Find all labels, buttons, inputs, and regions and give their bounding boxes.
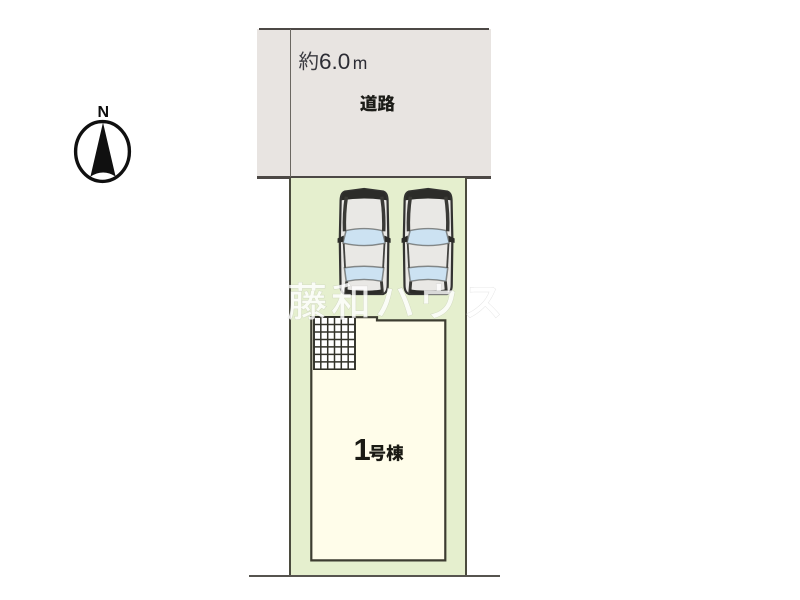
svg-text:m: m [353, 53, 368, 73]
svg-text:6.0: 6.0 [319, 49, 350, 74]
svg-text:N: N [98, 104, 110, 121]
svg-text:1: 1 [354, 432, 371, 466]
